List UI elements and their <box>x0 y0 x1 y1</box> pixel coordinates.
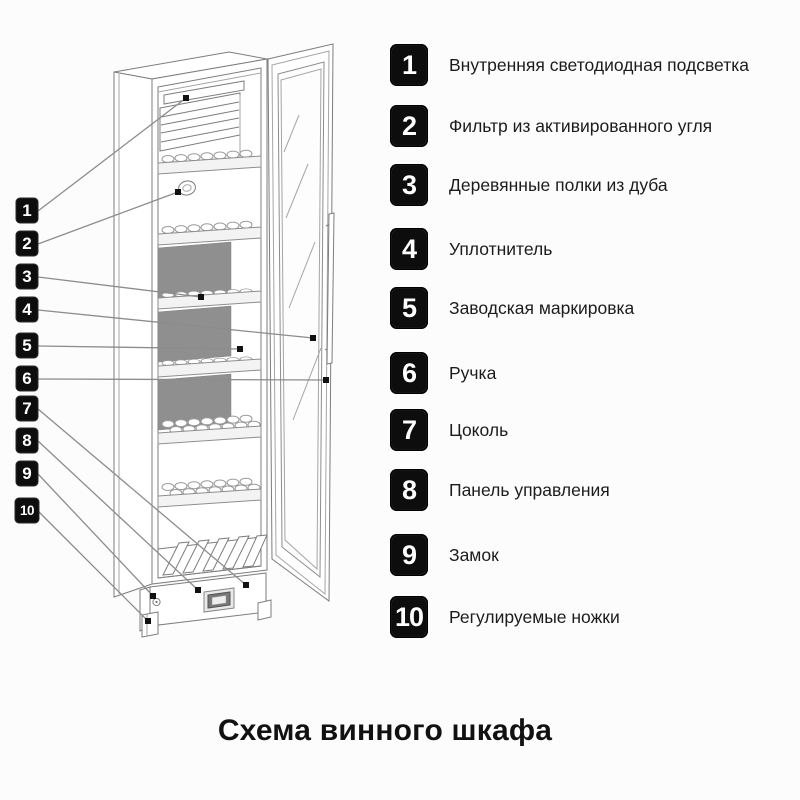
glass-door <box>268 44 334 601</box>
callout-number-8: 8 <box>22 431 31 450</box>
callout-number-6: 6 <box>22 369 31 388</box>
legend-label: Деревянные полки из дуба <box>449 175 668 196</box>
legend-item: 2 Фильтр из активированного угля <box>390 105 712 147</box>
legend-item: 10 Регулируемые ножки <box>390 596 620 638</box>
legend-label: Цоколь <box>449 420 508 441</box>
legend-label: Уплотнитель <box>449 239 552 260</box>
legend-number-badge: 9 <box>390 534 428 576</box>
callout-number-5: 5 <box>22 336 31 355</box>
legend-number-badge: 1 <box>390 44 428 86</box>
legend-label: Фильтр из активированного угля <box>449 116 712 137</box>
legend-item: 5 Заводская маркировка <box>390 287 634 329</box>
callout-number-3: 3 <box>22 267 31 286</box>
legend-item: 4 Уплотнитель <box>390 228 552 270</box>
legend-item: 1 Внутренняя светодиодная подсветка <box>390 44 749 86</box>
legend-number-badge: 6 <box>390 352 428 394</box>
page: 1 2 3 4 5 6 7 8 9 10 1 Внутренняя светод… <box>0 0 800 800</box>
legend-number-badge: 10 <box>390 596 428 638</box>
callout-number-4: 4 <box>22 300 32 319</box>
callout-number-1: 1 <box>22 201 31 220</box>
legend-number-badge: 8 <box>390 469 428 511</box>
callout-number-7: 7 <box>22 399 31 418</box>
legend-label: Ручка <box>449 363 496 384</box>
legend-number-badge: 5 <box>390 287 428 329</box>
legend-item: 7 Цоколь <box>390 409 508 451</box>
legend-item: 9 Замок <box>390 534 499 576</box>
callout-number-9: 9 <box>22 464 31 483</box>
diagram-title: Схема винного шкафа <box>0 714 770 748</box>
legend-label: Замок <box>449 545 499 566</box>
legend-label: Заводская маркировка <box>449 298 634 319</box>
legend-number-badge: 4 <box>390 228 428 270</box>
callout-badges: 1 2 3 4 5 6 7 8 9 10 <box>15 198 39 523</box>
legend-item: 6 Ручка <box>390 352 496 394</box>
control-panel <box>204 588 234 612</box>
callout-number-10: 10 <box>20 503 34 518</box>
legend-label: Панель управления <box>449 480 610 501</box>
legend-label: Внутренняя светодиодная подсветка <box>449 55 749 76</box>
legend-number-badge: 7 <box>390 409 428 451</box>
legend-number-badge: 2 <box>390 105 428 147</box>
legend-item: 3 Деревянные полки из дуба <box>390 164 668 206</box>
wine-cabinet-diagram: 1 2 3 4 5 6 7 8 9 10 <box>0 0 390 680</box>
legend-number-badge: 3 <box>390 164 428 206</box>
door-lock <box>153 598 160 605</box>
callout-number-2: 2 <box>22 234 31 253</box>
legend-item: 8 Панель управления <box>390 469 610 511</box>
back-panels <box>158 242 231 430</box>
legend-label: Регулируемые ножки <box>449 607 620 628</box>
